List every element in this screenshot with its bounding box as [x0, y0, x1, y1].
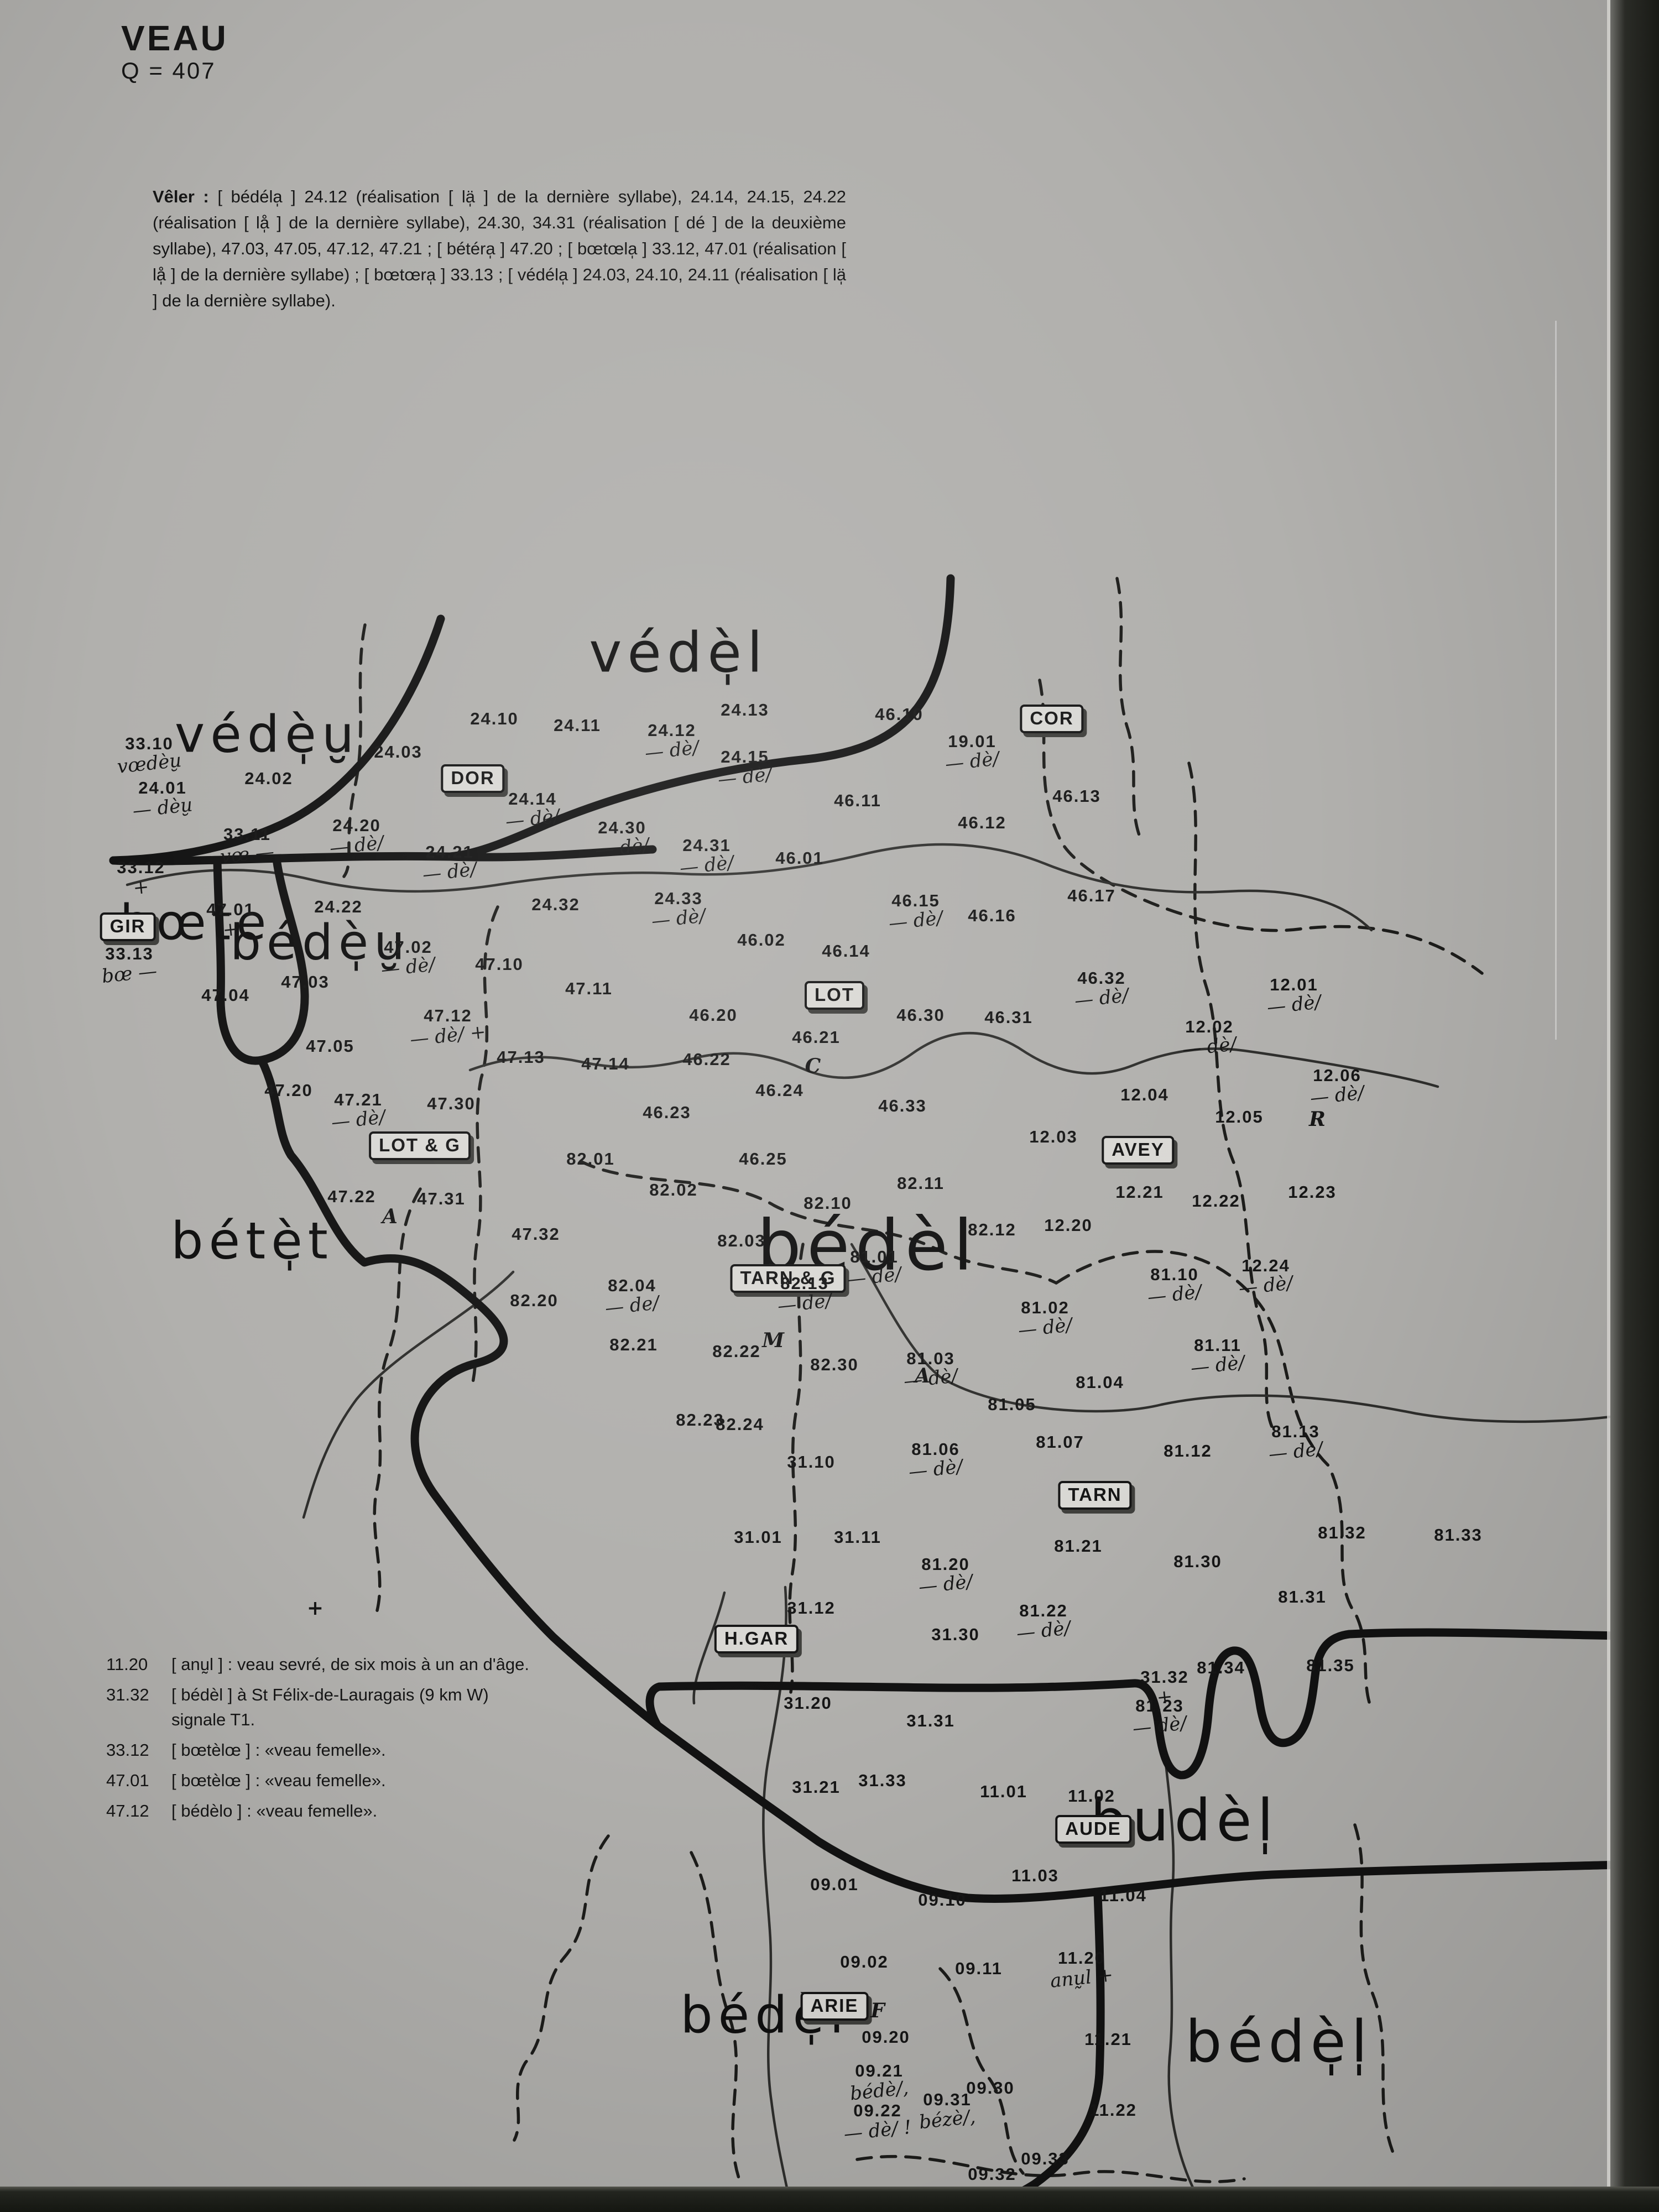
paper-crease [1555, 321, 1557, 1040]
photo-edge-right [1610, 0, 1659, 2212]
photo-vignette [0, 0, 1659, 2212]
atlas-map-page: VEAU Q = 407 Vêler : [ bédéla̩ ] 24.12 (… [0, 0, 1659, 2212]
photo-edge-bottom [0, 2187, 1659, 2212]
